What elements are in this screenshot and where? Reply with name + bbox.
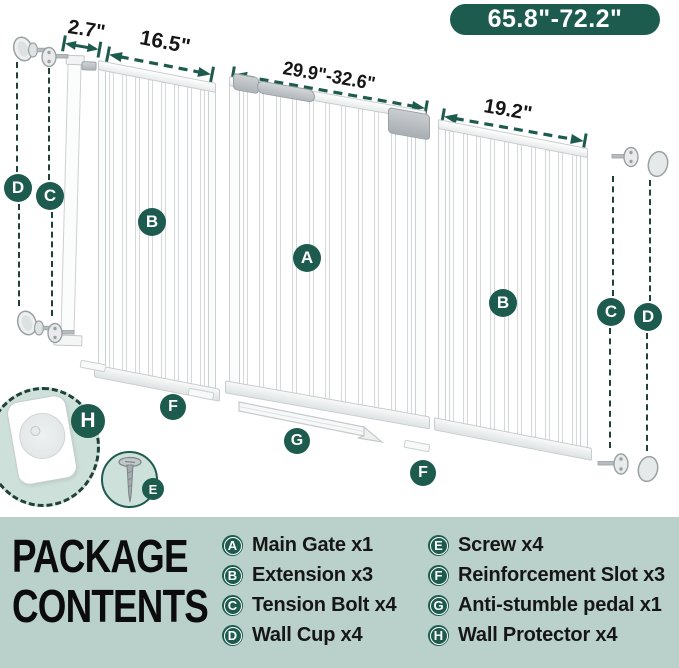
gate-post [438,122,446,430]
legend-column-left: A Main Gate x1 B Extension x3 C Tension … [222,535,396,646]
gate-bars [449,130,577,447]
legend-item-letter: D [228,628,237,643]
badge-reinforcement-slot-left: F [160,394,186,420]
legend-item-badge: F [428,565,449,586]
legend-item-letter: C [228,598,237,613]
anti-stumble-pedal [236,396,388,448]
gate-bar [243,87,248,386]
gate-post [208,84,216,398]
legend-item-label: Tension Bolt x4 [252,594,396,617]
gate-bar [517,143,522,436]
legend-item: D Wall Cup x4 [222,625,396,646]
panel-title-line1: PACKAGE [12,531,208,581]
legend-item-letter: E [434,538,443,553]
gate-bar [504,141,509,434]
gate-bar [490,138,495,431]
legend-item-label: Screw x4 [458,534,543,557]
gate-bar [572,154,577,447]
gate-bar [476,135,481,428]
gate-post [415,112,426,426]
legend-item-badge: H [428,625,449,646]
gate-post [229,79,240,393]
badge-wall-protector: H [71,404,105,438]
legend-item-label: Anti-stumble pedal x1 [458,594,662,617]
dashed-line [649,180,651,301]
legend-item: C Tension Bolt x4 [222,595,396,616]
gate-bar [200,89,205,388]
gate-bar [122,74,127,373]
gate-bar [374,111,379,410]
gate-bar [292,96,297,395]
legend-item: A Main Gate x1 [222,535,396,556]
badge-main-gate: A [293,244,321,272]
dashed-line [48,68,50,180]
gate-bar [276,93,281,392]
panel-title-line2: CONTENTS [12,581,208,631]
size-range-badge: 65.8"-72.2" [450,4,660,35]
badge-wall-cup-left: D [4,174,32,202]
post-connector-knob [81,61,96,70]
badge-extension-left: B [138,208,166,236]
package-contents-panel: PACKAGE CONTENTS A Main Gate x1 B Extens… [0,517,679,668]
legend-item-badge: D [222,625,243,646]
tension-bolt-icon [594,450,630,478]
dashed-line [16,62,18,172]
legend-item-badge: G [428,595,449,616]
badge-wall-cup-right: D [634,303,662,331]
dashed-line [609,328,611,448]
legend-item-badge: C [222,595,243,616]
extension-gate-right [438,119,588,460]
main-gate [229,76,426,429]
tension-bolt-icon [46,320,78,346]
gate-bars [243,87,412,415]
legend-item-badge: B [222,565,243,586]
badge-tension-bolt-left: C [36,182,64,210]
gate-bar [358,108,363,407]
gate-bar [325,102,330,401]
screw-large-icon [115,455,145,505]
legend-item-letter: H [434,628,443,643]
badge-extension-right: B [489,289,517,317]
badge-tension-bolt-right: C [597,298,625,326]
badge-screw: E [142,478,164,500]
badge-pedal: G [284,428,310,454]
tension-bolt-icon [40,44,72,70]
gate-bar [531,146,536,439]
gate-bar [109,71,114,370]
legend-item-badge: A [222,535,243,556]
legend-item-label: Main Gate x1 [252,534,373,557]
legend-item-label: Extension x3 [252,564,373,587]
legend-item-label: Reinforcement Slot x3 [458,564,665,587]
dashed-line [612,176,614,296]
wall-cup-icon [645,148,671,180]
legend-item-label: Wall Protector x4 [458,624,617,647]
legend-item: E Screw x4 [428,535,665,556]
legend-item-badge: E [428,535,449,556]
legend-item-letter: G [433,598,443,613]
small-extension-post [60,56,82,344]
gate-bar [187,86,192,385]
legend-item: H Wall Protector x4 [428,625,665,646]
legend-item-letter: B [228,568,237,583]
legend-column-right: E Screw x4 F Reinforcement Slot x3 G Ant… [428,535,665,646]
reinforcement-slot [403,440,430,453]
gate-bar [463,133,468,426]
panel-title: PACKAGE CONTENTS [12,531,208,631]
product-diagram-page: 65.8"-72.2" 2.7" 16.5" 29.9"-32.6" 19.2" [0,0,679,668]
dashed-line [646,333,648,451]
tension-bolt-icon [608,144,640,170]
gate-post [98,63,106,377]
dashed-line [18,204,20,306]
gate-bar [259,90,264,389]
legend-item: B Extension x3 [222,565,396,586]
gate-bar [341,105,346,404]
wall-cup-icon [635,453,661,485]
gate-bar [407,116,412,415]
gate-bar [449,130,454,423]
dashed-line [51,212,53,316]
wall-protector-recess [16,409,69,462]
legend-item: G Anti-stumble pedal x1 [428,595,665,616]
gate-bar [558,151,563,444]
badge-reinforcement-slot-right: F [410,460,436,486]
legend-item-label: Wall Cup x4 [252,624,362,647]
legend-item: F Reinforcement Slot x3 [428,565,665,586]
legend-item-letter: A [228,538,237,553]
gate-post [580,150,588,458]
gate-bar [391,113,396,412]
gate-bar [174,84,179,383]
gate-bar [545,149,550,442]
legend-item-letter: F [435,568,443,583]
